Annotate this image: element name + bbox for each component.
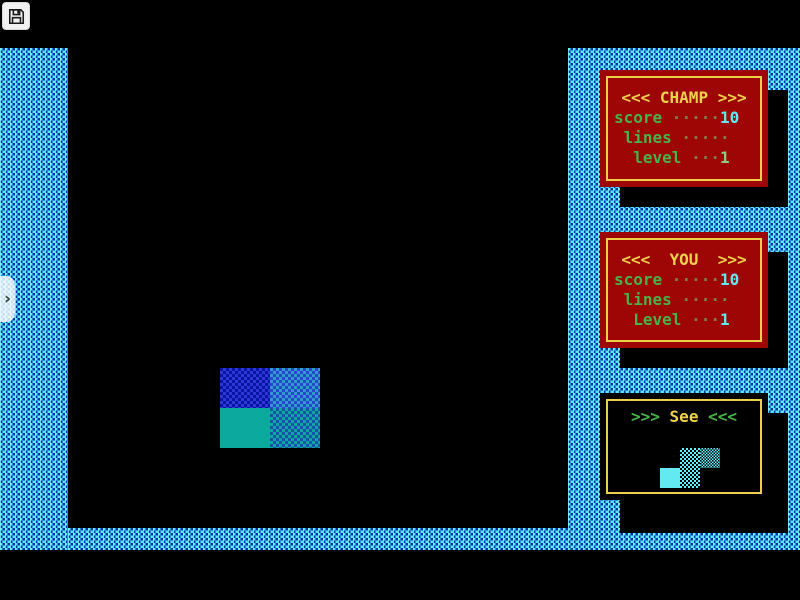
piece-cell-teal-dither — [270, 408, 320, 448]
you-score-dots: ····· — [662, 270, 720, 289]
piece-cell-blue-dither — [220, 368, 270, 408]
champ-score-value: 10 — [720, 108, 739, 127]
see-title: >>> See <<< — [600, 407, 768, 427]
see-title-arrows-left: >>> — [631, 407, 670, 426]
preview-cell-solid — [660, 468, 680, 488]
you-score-value: 10 — [720, 270, 739, 289]
champ-level-label: level — [614, 148, 681, 167]
champ-lines-row: lines ····· — [600, 128, 768, 148]
piece-cell-blue-light-dither — [270, 368, 320, 408]
chevron-right-icon: › — [4, 291, 11, 308]
page-background: <<< CHAMP >>> score ·····10 lines ····· … — [0, 0, 800, 600]
champ-score-dots: ····· — [662, 108, 720, 127]
you-score-label: score — [614, 270, 662, 289]
play-field — [68, 48, 568, 528]
you-title: <<< YOU >>> — [600, 250, 768, 270]
champ-lines-label: lines — [614, 128, 672, 147]
border-bottom — [68, 528, 568, 550]
save-button[interactable] — [2, 2, 30, 30]
see-title-arrows-right: <<< — [698, 407, 737, 426]
game-screen[interactable]: <<< CHAMP >>> score ·····10 lines ····· … — [0, 48, 800, 550]
next-piece-panel: >>> See <<< — [600, 393, 768, 500]
see-title-word: See — [670, 407, 699, 426]
floppy-disk-icon — [7, 7, 26, 26]
champ-title: <<< CHAMP >>> — [600, 88, 768, 108]
you-level-row: Level ···1 — [600, 310, 768, 330]
you-lines-row: lines ····· — [600, 290, 768, 310]
you-level-value: 1 — [720, 310, 730, 329]
you-lines-dots: ····· — [672, 290, 730, 309]
champ-score-label: score — [614, 108, 662, 127]
piece-cell-teal-solid — [220, 408, 270, 448]
champ-level-dots: ··· — [681, 148, 720, 167]
you-panel: <<< YOU >>> score ·····10 lines ····· Le… — [600, 232, 768, 348]
champ-lines-dots: ····· — [672, 128, 730, 147]
preview-cell-dense-dither — [700, 448, 720, 468]
champ-level-value: 1 — [720, 148, 730, 167]
you-level-dots: ··· — [681, 310, 720, 329]
champ-score-row: score ·····10 — [600, 108, 768, 128]
drawer-handle[interactable]: › — [0, 276, 15, 322]
you-lines-label: lines — [614, 290, 672, 309]
champ-level-row: level ···1 — [600, 148, 768, 168]
you-score-row: score ·····10 — [600, 270, 768, 290]
champ-panel: <<< CHAMP >>> score ·····10 lines ····· … — [600, 70, 768, 187]
you-level-label: Level — [614, 310, 681, 329]
preview-cell-dither — [680, 468, 700, 488]
preview-cell-dither — [680, 448, 700, 468]
